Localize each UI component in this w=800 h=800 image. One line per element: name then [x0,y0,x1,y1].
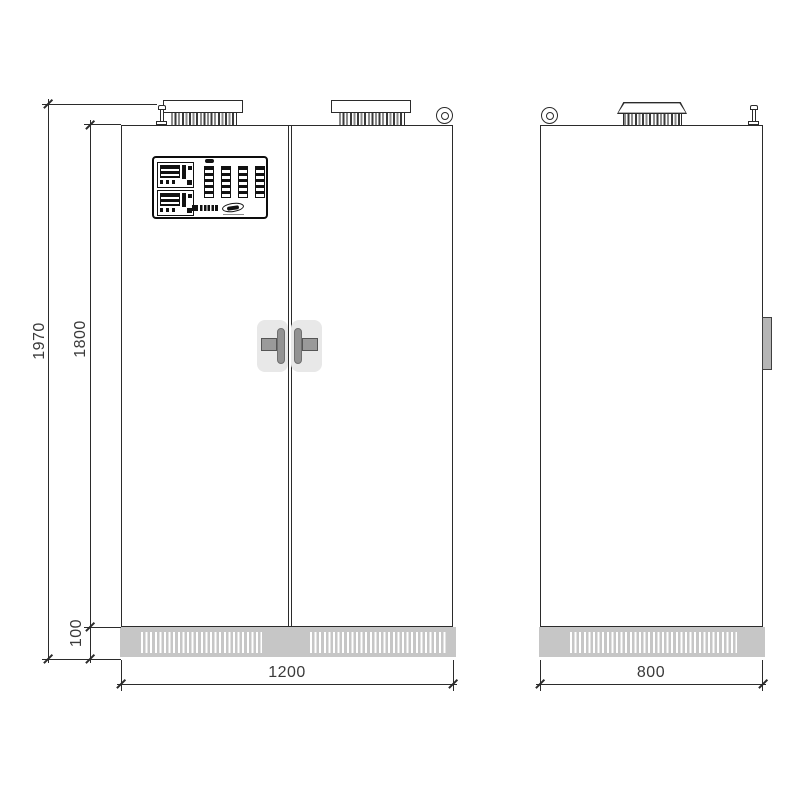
dim-extension-line [42,659,121,660]
vent-fins [339,113,403,125]
meter-button [188,194,192,198]
meter-button [188,166,192,170]
dim-line-front-width [117,684,457,685]
dim-line-depth [536,684,766,685]
handle-grip-left [277,328,285,364]
segment-display [238,166,248,198]
vent-post [681,113,682,125]
brand-logo-underline [223,214,244,215]
side-cabinet-body [540,125,763,627]
meter-button [187,180,192,185]
handle-latch-left [261,338,277,351]
dim-extension-line [42,104,157,105]
dim-line-overall-height [48,99,49,663]
segment-display [204,166,214,198]
meter-display [160,165,180,178]
vent-fins [624,114,680,125]
dim-extension-line [540,660,541,691]
eyebolt-foot [748,121,759,125]
dim-extension-line [453,660,454,691]
meter-marks [160,180,178,184]
dim-line-cabinet-height [90,120,91,663]
segment-display [221,166,231,198]
meter-strip [182,165,186,179]
lifting-eye-hole [546,112,554,120]
brand-logo-word [200,205,219,211]
roof-vent-icon [331,100,411,113]
louver-grille-icon [310,632,447,653]
meter-display [160,193,180,206]
meter-marks [160,208,178,212]
control-panel-icon [152,156,268,219]
roof-vent-icon [163,100,243,113]
dim-label-overall-height: 1970 [31,313,49,369]
handle-grip-right [294,328,302,364]
lifting-eye-icon [436,107,453,124]
dim-extension-line [121,660,122,691]
door-handle-icon [762,317,772,370]
handle-latch-right [302,338,318,351]
dim-extension-line [84,627,121,628]
dim-label-plinth-height: 100 [68,613,86,653]
vent-post [236,112,237,125]
lifting-eye-hole [441,112,449,120]
roof-vent-cap [618,103,685,112]
dim-label-front-width: 1200 [257,664,317,682]
dim-label-cabinet-height: 1800 [72,311,90,367]
dim-label-depth: 800 [621,664,681,682]
lifting-eye-icon [541,107,558,124]
louver-grille-icon [141,632,262,653]
eyebolt-foot [156,121,167,125]
meter-strip [182,193,186,207]
door-gap-line-left [288,126,289,626]
brand-logo-block [192,205,198,211]
roof-vent-icon [617,102,687,114]
technical-drawing-canvas: 1970 1800 100 1200 800 [0,0,800,800]
dim-extension-line [84,124,121,125]
louver-grille-icon [570,632,737,653]
door-gap-line-right [291,126,292,626]
panel-connector [205,159,214,163]
vent-post [404,112,405,125]
segment-display [255,166,265,198]
dim-extension-line [762,660,763,691]
vent-fins [171,113,235,125]
meter-module [157,162,194,188]
meter-module [157,190,194,216]
